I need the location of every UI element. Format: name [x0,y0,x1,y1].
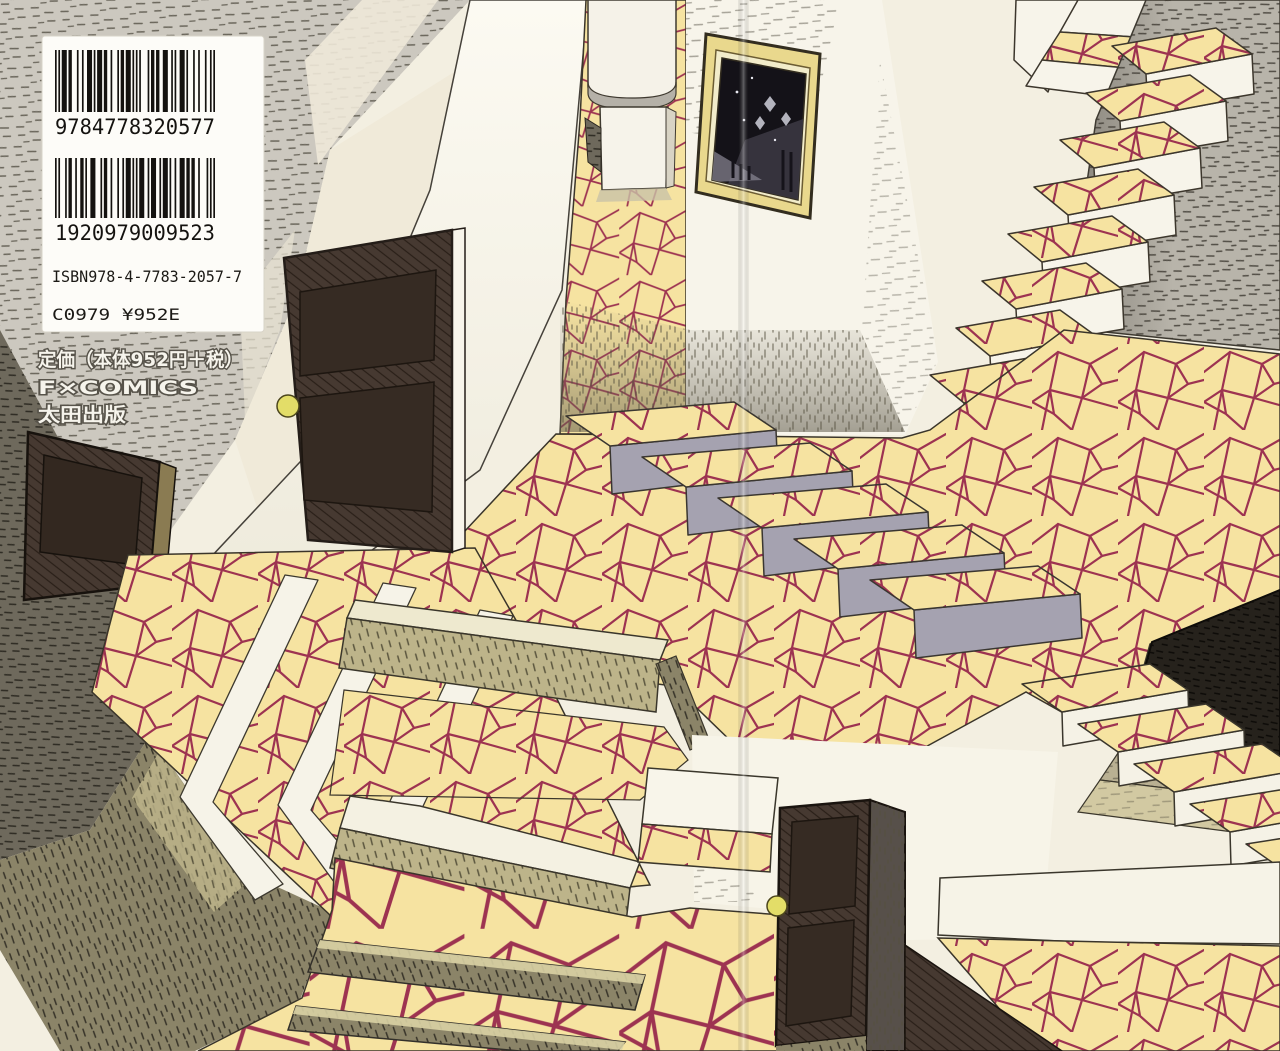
door-lower [767,800,905,1051]
barcode-digits-bottom: 1920979009523 [55,221,215,245]
framed-picture [696,34,820,218]
isbn-line: ISBN978-4-7783-2057-7 [52,267,242,286]
book-back-cover: 9784778320577 1920979009523 ISBN978-4-77… [0,0,1280,1051]
spine-fold [738,0,749,1051]
doorknob-lower [767,896,787,916]
doorknob-upper [277,395,299,417]
barcode-panel: 9784778320577 1920979009523 ISBN978-4-77… [42,36,264,332]
publisher-line: 太田出版 [38,403,126,426]
door-upper [277,228,465,552]
price-line: 定価（本体952円＋税） [38,348,243,371]
barcode-digits-top: 9784778320577 [55,115,215,139]
step-block [638,768,778,872]
price-code-line: C0979 ¥952E [52,305,180,324]
escher-stairwell-illustration: 9784778320577 1920979009523 ISBN978-4-77… [0,0,1280,1051]
label-line: F×COMICS [38,377,198,399]
